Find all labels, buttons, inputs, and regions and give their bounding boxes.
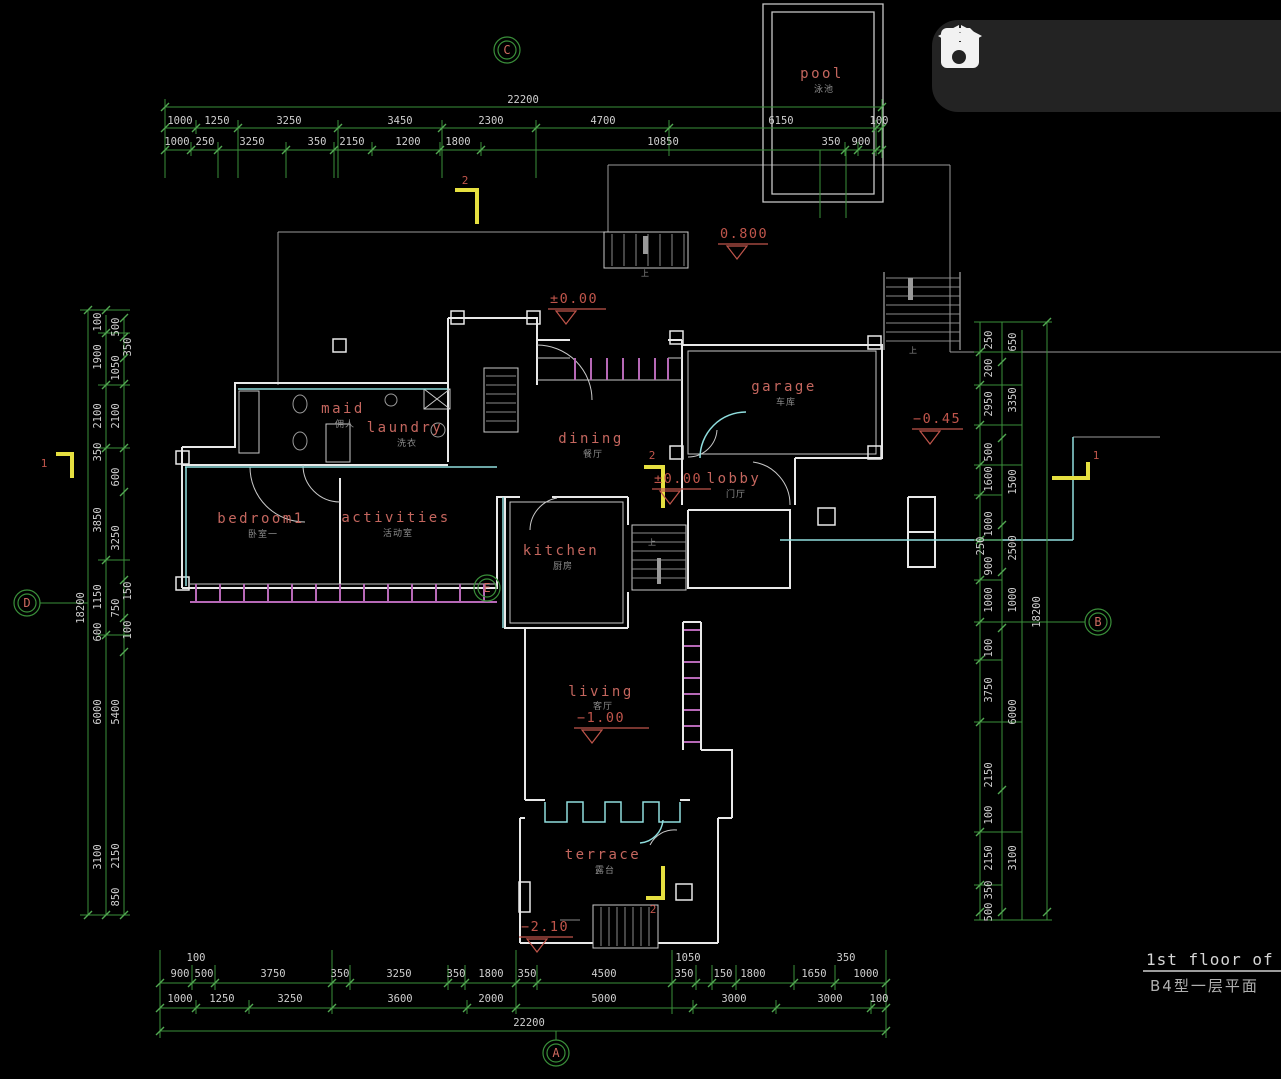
stair-rail xyxy=(908,278,913,300)
dim-label: 1800 xyxy=(740,968,765,980)
toolbar xyxy=(932,20,1281,112)
room-label: kitchen xyxy=(523,543,600,559)
dim-label: 1200 xyxy=(395,136,420,148)
dim-label: 1050 xyxy=(110,355,122,380)
dim-label: 5000 xyxy=(591,993,616,1005)
room-label-cn: 门厅 xyxy=(726,488,746,500)
dim-label: 1050 xyxy=(675,952,700,964)
dim-label: 850 xyxy=(110,888,122,907)
room-label: activities xyxy=(341,510,450,526)
cad-app-window: 2 2 2 1 1 0.800 ±0.00 −0.45 ±0.00 −1.00 … xyxy=(0,0,1281,1079)
dim-label: 350 xyxy=(308,136,327,148)
elevation-label: −2.10 xyxy=(521,919,569,935)
title-block: 1st floor of B B4型一层平面 xyxy=(1143,950,1281,995)
dim-label: 1000 xyxy=(167,115,192,127)
room-label-cn: 车库 xyxy=(776,396,796,408)
dim-label: 3450 xyxy=(387,115,412,127)
dim-label: 10850 xyxy=(647,136,679,148)
grid-bubble-letter: D xyxy=(23,596,30,610)
drawing-title-en: 1st floor of B xyxy=(1146,950,1281,969)
site-boundary-lines xyxy=(278,165,1281,437)
dim-label: 3750 xyxy=(983,677,995,702)
dim-label: 350 xyxy=(518,968,537,980)
pool-outline xyxy=(763,4,883,202)
elevation-label: −1.00 xyxy=(577,710,625,726)
thin-walls xyxy=(190,232,960,948)
dim-label: 2000 xyxy=(478,993,503,1005)
dim-label: 250 xyxy=(196,136,215,148)
dim-label: 3250 xyxy=(239,136,264,148)
dim-label: 3600 xyxy=(387,993,412,1005)
room-label: laundry xyxy=(367,420,444,436)
room-labels: pool 泳池 maid 佣人 laundry 洗衣 dining 餐厅 gar… xyxy=(217,66,844,876)
dim-label: 2950 xyxy=(983,391,995,416)
dim-label: 2500 xyxy=(1007,535,1019,560)
grid-bubble-letter: E xyxy=(483,581,490,595)
left-dimension-labels: 18200 100 1900 2100 350 3850 1150 600 60… xyxy=(75,313,134,907)
room-label: terrace xyxy=(565,847,642,863)
dim-label: 1000 xyxy=(983,511,995,536)
dim-label: 6000 xyxy=(92,699,104,724)
dim-label: 22200 xyxy=(513,1017,545,1029)
dim-label: 2150 xyxy=(110,843,122,868)
dim-label: 250 xyxy=(983,331,995,350)
dim-label: 1800 xyxy=(445,136,470,148)
dim-label: 500 xyxy=(983,903,995,922)
undo-button[interactable] xyxy=(1094,38,1150,94)
dim-label: 3100 xyxy=(1007,845,1019,870)
room-label: maid xyxy=(321,401,365,417)
dim-label: 3250 xyxy=(277,993,302,1005)
stair-note: 上 xyxy=(641,269,649,278)
room-label-cn: 餐厅 xyxy=(583,448,603,460)
section-number: 1 xyxy=(41,457,48,470)
dim-label: 100 xyxy=(92,313,104,332)
room-label-cn: 泳池 xyxy=(814,83,834,95)
dim-label: 500 xyxy=(110,318,122,337)
dim-label: 1150 xyxy=(92,584,104,609)
room-label: living xyxy=(568,684,634,700)
section-number: 2 xyxy=(650,903,657,916)
room-label-cn: 佣人 xyxy=(335,419,355,430)
cad-canvas[interactable]: 2 2 2 1 1 0.800 ±0.00 −0.45 ±0.00 −1.00 … xyxy=(0,0,1281,1079)
stair-rail xyxy=(643,236,648,254)
section-number: 2 xyxy=(649,449,656,462)
dim-label: 6150 xyxy=(768,115,793,127)
dim-label: 900 xyxy=(171,968,190,980)
dim-label: 600 xyxy=(92,623,104,642)
dim-label: 3100 xyxy=(92,844,104,869)
dim-label: 3750 xyxy=(260,968,285,980)
toilet-fixture xyxy=(293,395,307,413)
sink-fixture xyxy=(385,394,397,406)
dim-label: 1500 xyxy=(1007,469,1019,494)
dim-label: 1000 xyxy=(164,136,189,148)
dim-label: 1800 xyxy=(478,968,503,980)
dim-label: 100 xyxy=(870,993,889,1005)
dim-label: 3250 xyxy=(110,525,122,550)
room-label: lobby xyxy=(707,471,762,487)
dim-label: 22200 xyxy=(507,94,539,106)
dim-label: 3850 xyxy=(92,507,104,532)
room-label-cn: 厨房 xyxy=(553,560,573,572)
dim-label: 1650 xyxy=(801,968,826,980)
dim-label: 350 xyxy=(92,443,104,462)
dim-label: 4700 xyxy=(590,115,615,127)
dim-label: 2300 xyxy=(478,115,503,127)
room-label: bedroom1 xyxy=(217,511,304,527)
dim-label: 250 xyxy=(975,537,987,556)
right-dimension-labels: 250 200 2950 500 1600 1000 250 900 1000 … xyxy=(975,331,1043,922)
dim-label: 900 xyxy=(852,136,871,148)
dim-label: 150 xyxy=(122,582,134,601)
dim-label: 900 xyxy=(983,557,995,576)
dim-label: 100 xyxy=(187,952,206,964)
redo-button[interactable] xyxy=(1222,38,1278,94)
top-dimension-labels: 22200 1000 1250 3250 3450 2300 4700 6150… xyxy=(164,94,888,148)
dim-label: 3250 xyxy=(276,115,301,127)
dim-label: 350 xyxy=(837,952,856,964)
walls-layer xyxy=(176,232,960,948)
boundary-lines xyxy=(278,165,1281,437)
dim-label: 3000 xyxy=(721,993,746,1005)
dim-label: 4500 xyxy=(591,968,616,980)
elevation-symbols xyxy=(519,244,963,952)
bottom-dimension-labels: 100 1050 350 900 500 3750 350 3250 350 1… xyxy=(167,952,888,1029)
drawing-title-cn: B4型一层平面 xyxy=(1150,977,1259,995)
dim-label: 600 xyxy=(110,468,122,487)
dim-label: 2150 xyxy=(983,762,995,787)
dim-label: 350 xyxy=(331,968,350,980)
dim-label: 1250 xyxy=(209,993,234,1005)
room-label-cn: 洗衣 xyxy=(397,437,417,449)
dim-label: 350 xyxy=(122,338,134,357)
dim-label: 100 xyxy=(122,621,134,640)
dim-label: 200 xyxy=(983,359,995,378)
grid-bubble-letter: A xyxy=(552,1046,560,1060)
dim-label: 150 xyxy=(714,968,733,980)
dim-label: 1000 xyxy=(853,968,878,980)
room-label: dining xyxy=(558,431,624,447)
dim-label: 1600 xyxy=(983,466,995,491)
dim-label: 500 xyxy=(195,968,214,980)
stair-note: 上 xyxy=(909,346,917,355)
door-arcs xyxy=(250,345,790,845)
dim-label: 750 xyxy=(110,599,122,618)
dim-label: 650 xyxy=(1007,333,1019,352)
section-number: 1 xyxy=(1093,449,1100,462)
elevation-label: ±0.00 xyxy=(654,471,702,487)
dim-label: 1000 xyxy=(1007,587,1019,612)
toilet-fixture xyxy=(293,432,307,450)
dim-label: 100 xyxy=(983,806,995,825)
dim-label: 1900 xyxy=(92,344,104,369)
pool-walls xyxy=(763,4,883,202)
dim-label: 350 xyxy=(447,968,466,980)
dim-label: 3000 xyxy=(817,993,842,1005)
dim-label: 2150 xyxy=(983,845,995,870)
dim-label: 18200 xyxy=(75,592,87,624)
stairs-layer xyxy=(293,234,960,946)
dim-label: 500 xyxy=(983,443,995,462)
dim-label: 100 xyxy=(870,115,889,127)
dim-label: 3350 xyxy=(1007,387,1019,412)
room-label-cn: 露台 xyxy=(595,864,615,876)
dim-label: 3250 xyxy=(386,968,411,980)
room-label-cn: 卧室一 xyxy=(248,528,278,540)
elevation-label: ±0.00 xyxy=(550,291,598,307)
dim-label: 1250 xyxy=(204,115,229,127)
dim-label: 350 xyxy=(983,881,995,900)
room-label-cn: 客厅 xyxy=(593,700,613,712)
stair-note: 上 xyxy=(648,538,656,547)
room-label: garage xyxy=(751,379,817,395)
elevation-label: 0.800 xyxy=(720,226,768,242)
dim-label: 2150 xyxy=(339,136,364,148)
main-walls xyxy=(182,318,935,943)
dim-label: 5400 xyxy=(110,699,122,724)
dim-label: 350 xyxy=(822,136,841,148)
dim-label: 2100 xyxy=(110,403,122,428)
dim-label: 6000 xyxy=(1007,699,1019,724)
dim-label: 1000 xyxy=(983,587,995,612)
dim-label: 100 xyxy=(983,639,995,658)
dim-label: 1000 xyxy=(167,993,192,1005)
dim-label: 2100 xyxy=(92,403,104,428)
elevation-label: −0.45 xyxy=(913,411,961,427)
grid-bubble-letter: C xyxy=(503,43,510,57)
dim-label: 350 xyxy=(675,968,694,980)
stair-rail xyxy=(657,558,661,584)
room-label-cn: 活动室 xyxy=(383,527,413,539)
section-number: 2 xyxy=(462,174,469,187)
grid-bubble-letter: B xyxy=(1094,615,1101,629)
dim-label: 18200 xyxy=(1031,596,1043,628)
redo-icon xyxy=(932,20,988,76)
room-label: pool xyxy=(800,66,844,82)
